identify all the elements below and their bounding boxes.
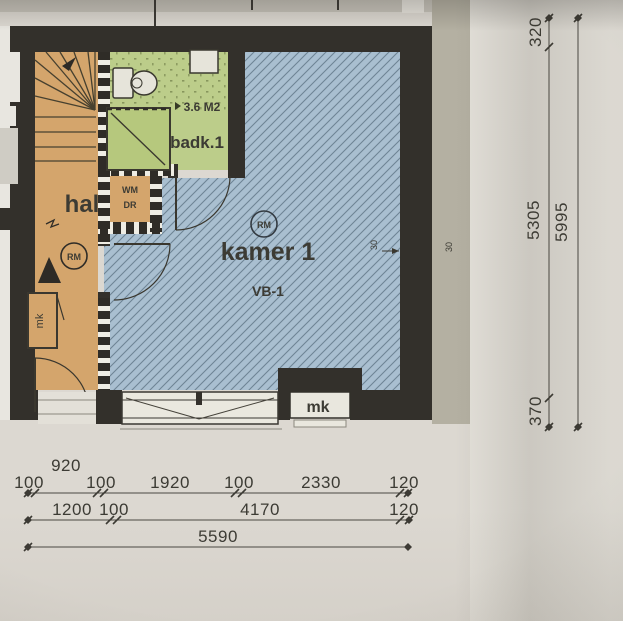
wall-door-window-pier [96, 390, 122, 424]
dim-r1-1: 100 [86, 473, 116, 492]
side-band [432, 0, 470, 424]
dim-r1-5: 120 [389, 473, 419, 492]
front-door-opening [38, 392, 96, 424]
bathroom-label: badk.1 [170, 133, 224, 152]
neighbour-unit-fragment [0, 26, 35, 420]
dim-r2-2: 4170 [240, 500, 280, 519]
wall-top [10, 26, 432, 52]
toilet-tank-icon [113, 68, 133, 98]
closet-line2: DR [124, 200, 137, 210]
wall-meter-niche-jamb-left [278, 390, 290, 420]
floor-plan-photo: RM mk S RM 30 30 WM DR mk hal 3.6 M2 [0, 0, 623, 621]
floor-plan-drawing: RM mk S RM 30 30 WM DR mk hal 3.6 M2 [0, 0, 623, 621]
meter-cabinet-hall-label: mk [34, 313, 46, 328]
window-mullion [196, 392, 202, 405]
hall-label: hal [65, 191, 100, 218]
meter-cabinet-step [294, 420, 346, 427]
dim-r2-1: 100 [99, 500, 129, 519]
dim-r1-0: 100 [14, 473, 44, 492]
wall-bottom-right [362, 390, 432, 420]
wall-meter-niche-back [278, 368, 362, 392]
wall-bathroom-right [228, 26, 245, 178]
dim-v-370: 370 [526, 396, 545, 426]
smoke-detector-room-label: RM [257, 220, 271, 230]
washbasin-icon [190, 50, 218, 73]
wall-right [400, 26, 432, 420]
wall-note-outer: 30 [444, 242, 454, 252]
room1-label: kamer 1 [221, 238, 316, 266]
adjacent-sheet-strip [0, 0, 470, 12]
closet-line1: WM [122, 185, 138, 195]
dim-r3-0: 5590 [198, 527, 238, 546]
dim-v-5995: 5995 [552, 202, 571, 242]
bathroom-area-label: 3.6 M2 [184, 100, 221, 114]
dim-r1-2: 1920 [150, 473, 190, 492]
dim-v-320: 320 [526, 17, 545, 47]
wall-meter-niche-jamb-right [350, 390, 362, 420]
toilet-bowl-icon [131, 71, 157, 95]
meter-cabinet-facade-label: mk [306, 399, 329, 416]
dim-v-5305: 5305 [524, 200, 543, 240]
wall-note-inner: 30 [369, 240, 379, 250]
dim-r1-3: 100 [224, 473, 254, 492]
dim-r1-4: 2330 [301, 473, 341, 492]
dim-r2-0: 1200 [52, 500, 92, 519]
dim-r2-3: 120 [389, 500, 419, 519]
dim-920: 920 [51, 456, 81, 475]
smoke-detector-hall-label: RM [67, 252, 81, 262]
facade-openings: mk [38, 392, 350, 429]
wall-bottom-left-stub [10, 390, 38, 420]
room1-code: VB-1 [252, 283, 284, 299]
